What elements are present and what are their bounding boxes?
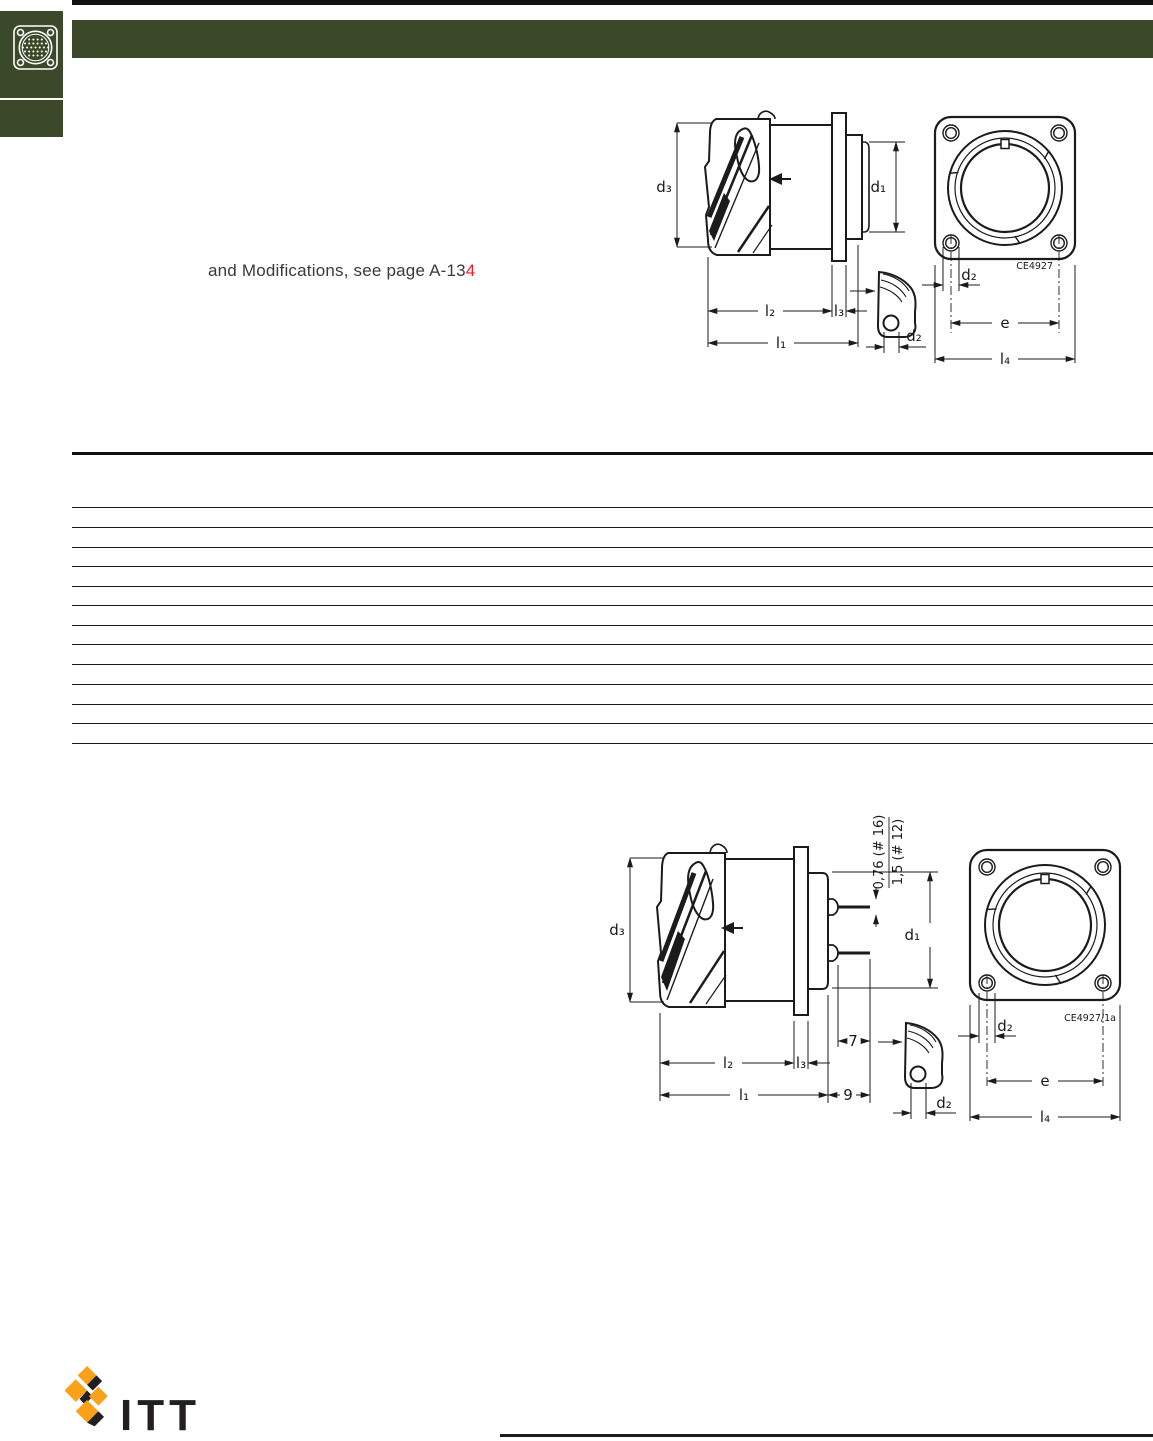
table-rule [72, 644, 1153, 645]
catalog-page: and Modifications, see page A-134 [0, 0, 1153, 1441]
table-top-rule [72, 452, 1153, 455]
note-page-digit: 4 [466, 261, 476, 280]
dim-label-9: 9 [843, 1086, 853, 1104]
table-rule [72, 527, 1153, 528]
connector-face-icon [0, 11, 63, 98]
dim-label-d2-detail: d₂ [906, 327, 922, 345]
table-rule [72, 723, 1153, 724]
table-rule [72, 547, 1153, 548]
table-rule [72, 605, 1153, 606]
dim-label-d3: d₃ [656, 178, 672, 196]
dim-label-l4: l₄ [1000, 350, 1010, 368]
dim-label-l2: l₂ [723, 1054, 733, 1072]
drawing-code: CE4927/1a [1064, 1013, 1116, 1024]
dim-label-d2-front: d₂ [961, 266, 977, 284]
dim-label-d3: d₃ [609, 921, 625, 939]
dim-label-7: 7 [848, 1032, 858, 1050]
keyway-notch [1041, 875, 1049, 884]
front-view [970, 850, 1120, 1000]
side-view [705, 111, 869, 261]
top-rule [72, 0, 1153, 5]
dim-label-d1: d₁ [904, 926, 920, 944]
dim-label-e: e [1000, 314, 1009, 332]
dim-label-l1: l₁ [739, 1086, 749, 1104]
dim-label-pin-dia-12: 1,5 (# 12) [891, 819, 906, 886]
dim-label-l2: l₂ [765, 302, 775, 320]
modifications-note: and Modifications, see page A-134 [208, 261, 475, 281]
table-rule [72, 586, 1153, 587]
dim-label-pin-dia-16: 0,76 (# 16) [872, 815, 887, 890]
sidebar-tab-blank [0, 100, 63, 137]
table-rule [72, 507, 1153, 508]
header-bar [72, 20, 1153, 58]
dim-label-l4: l₄ [1040, 1108, 1050, 1125]
itt-logo-icon [64, 1366, 112, 1432]
dim-label-d1: d₁ [870, 178, 886, 196]
table-rule [72, 684, 1153, 685]
table-rule [72, 664, 1153, 665]
front-view [935, 117, 1075, 259]
dim-label-l3: l₃ [834, 302, 844, 320]
dim-label-l3: l₃ [796, 1054, 806, 1072]
polarization-arrow-icon [721, 922, 734, 934]
dim-label-e: e [1040, 1072, 1049, 1090]
table-rule [72, 743, 1153, 744]
itt-wordmark: ITT [120, 1394, 201, 1438]
front-view-dimensions [922, 235, 1075, 363]
note-text: and Modifications, see page A-13 [208, 261, 466, 280]
table-rule [72, 704, 1153, 705]
technical-drawing-receptacle-solder-pins: d₃ d₁ 0,76 (# 16) 1,5 (# 12) 7 l₂ l₃ l₁ … [590, 795, 1153, 1125]
technical-drawing-receptacle: d₃ d₁ l₂ l₃ l₁ d₂ d₂ e l₄ CE4927 [620, 85, 1153, 385]
dim-label-d2-front: d₂ [997, 1017, 1013, 1035]
sidebar-tab-connector [0, 11, 63, 98]
dim-label-l1: l₁ [776, 334, 786, 352]
front-view-dimensions [958, 975, 1120, 1121]
table-rule [72, 625, 1153, 626]
drawing-code: CE4927 [1016, 261, 1053, 272]
table-rule [72, 566, 1153, 567]
footer-rule [500, 1434, 1153, 1437]
keyway-notch [1001, 140, 1009, 149]
dim-label-d2-detail: d₂ [936, 1094, 952, 1112]
contact-pins [22, 38, 49, 56]
